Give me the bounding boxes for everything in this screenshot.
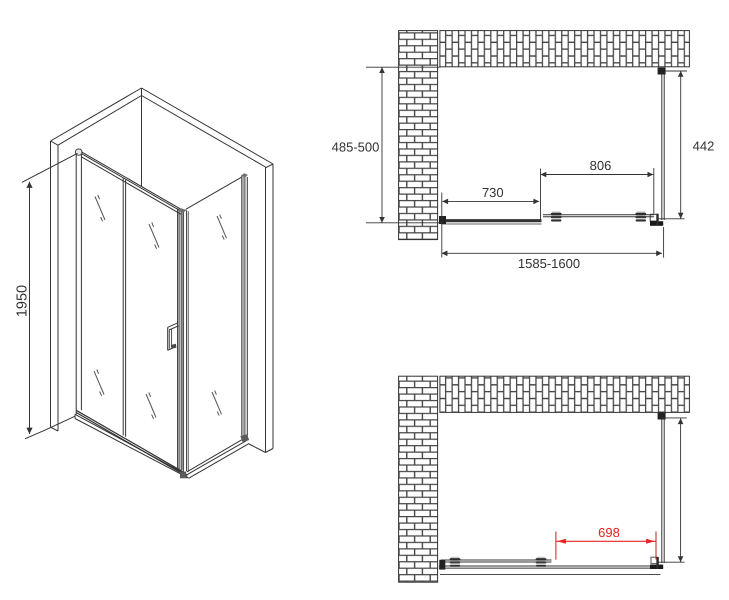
svg-text:730: 730 xyxy=(482,185,504,200)
svg-text:1950: 1950 xyxy=(14,285,30,317)
svg-text:806: 806 xyxy=(590,158,612,173)
svg-text:1585-1600: 1585-1600 xyxy=(518,256,580,271)
svg-text:485-500: 485-500 xyxy=(332,140,380,155)
svg-text:698: 698 xyxy=(598,525,620,540)
svg-text:442: 442 xyxy=(693,139,715,154)
